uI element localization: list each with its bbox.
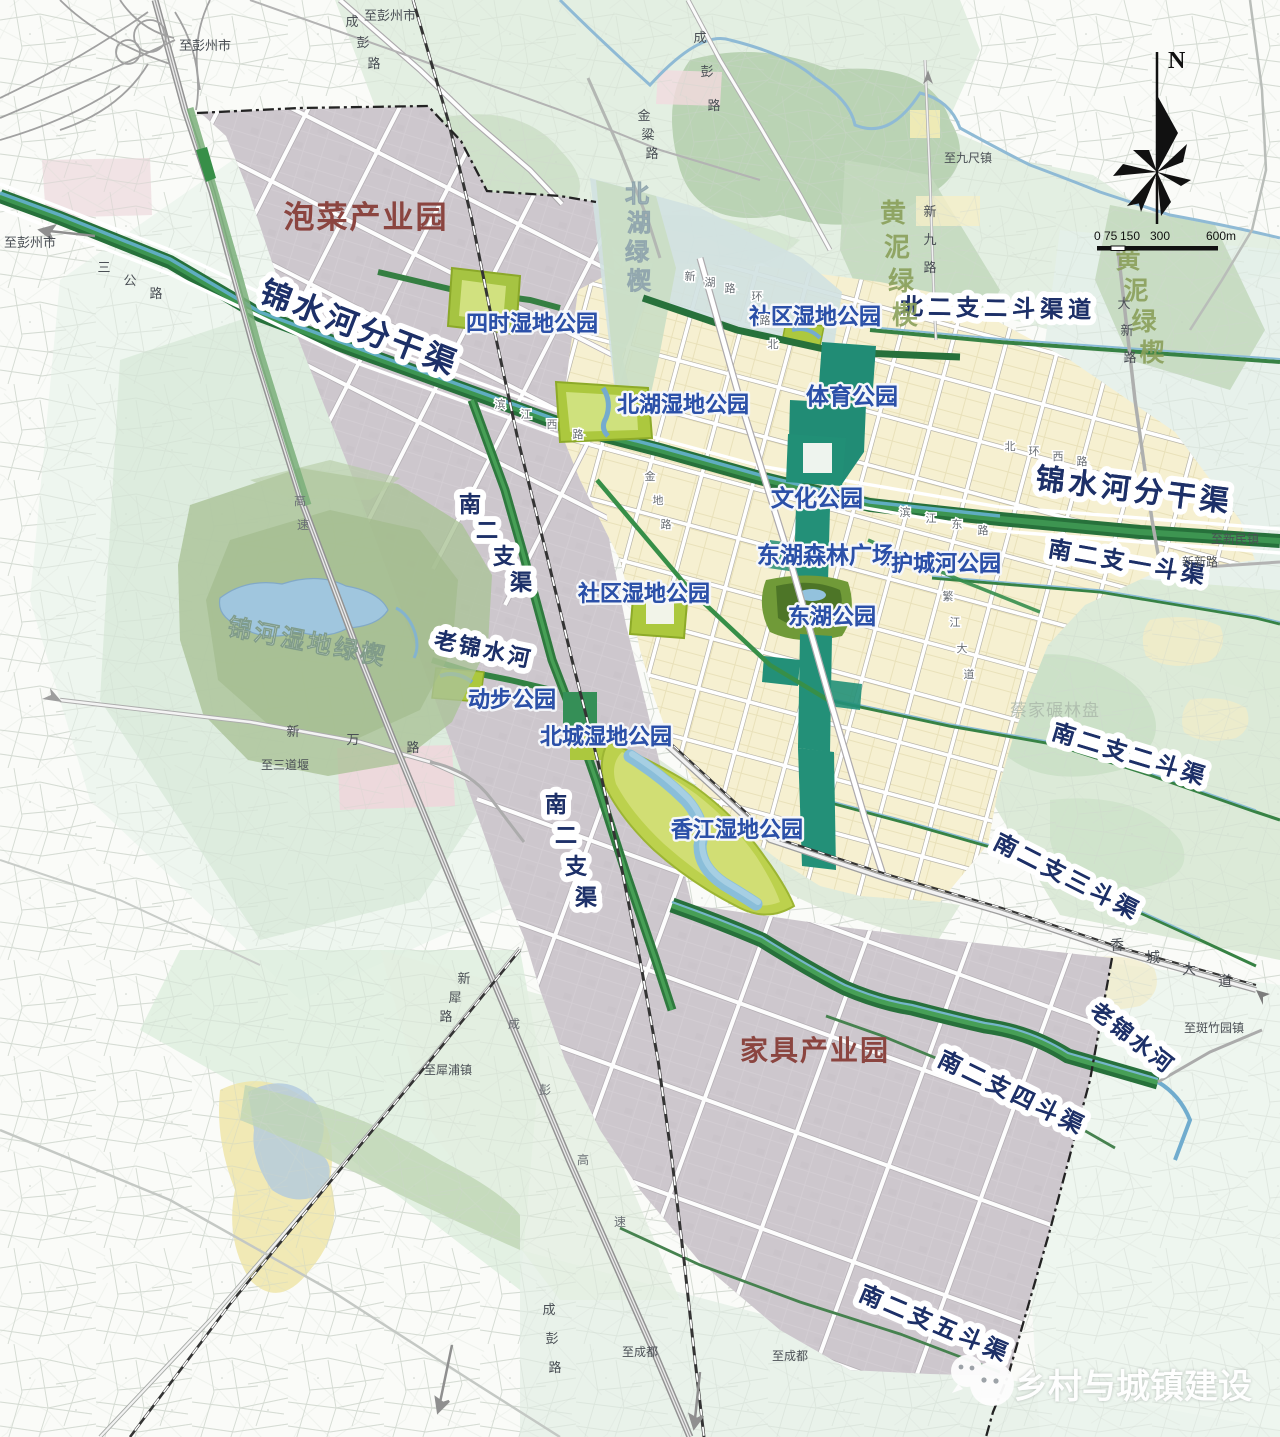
svg-text:东: 东 <box>952 518 963 531</box>
svg-text:150: 150 <box>1120 229 1140 243</box>
svg-text:楔: 楔 <box>1139 339 1164 367</box>
svg-text:北: 北 <box>1005 440 1016 453</box>
svg-text:路: 路 <box>1077 455 1088 468</box>
svg-text:路: 路 <box>367 56 380 71</box>
svg-text:新: 新 <box>923 204 936 219</box>
svg-text:北二支二斗渠道: 北二支二斗渠道 <box>900 293 1096 322</box>
svg-text:环: 环 <box>1029 446 1040 458</box>
svg-text:楔: 楔 <box>892 300 918 330</box>
svg-text:至彭州市: 至彭州市 <box>364 8 416 23</box>
svg-text:湖: 湖 <box>627 210 651 237</box>
svg-text:路: 路 <box>1123 350 1136 365</box>
svg-text:动步公园: 动步公园 <box>468 687 556 712</box>
svg-text:绿: 绿 <box>1131 307 1157 336</box>
svg-text:路: 路 <box>923 260 936 275</box>
svg-text:家具产业园: 家具产业园 <box>740 1034 890 1067</box>
svg-text:泥: 泥 <box>884 232 910 262</box>
svg-text:新新路: 新新路 <box>1182 554 1218 569</box>
svg-text:速: 速 <box>614 1215 626 1229</box>
svg-text:路: 路 <box>548 1360 561 1375</box>
svg-text:路: 路 <box>573 428 584 441</box>
svg-text:犀: 犀 <box>448 990 461 1005</box>
svg-text:新: 新 <box>286 724 299 739</box>
svg-text:路: 路 <box>645 146 658 161</box>
svg-text:彭: 彭 <box>356 35 369 50</box>
svg-text:社区湿地公园: 社区湿地公园 <box>578 581 710 606</box>
svg-text:大: 大 <box>1117 296 1130 311</box>
svg-text:香江湿地公园: 香江湿地公园 <box>671 817 803 842</box>
svg-text:公: 公 <box>123 273 136 288</box>
svg-text:江: 江 <box>950 616 961 629</box>
svg-text:地: 地 <box>653 494 664 507</box>
svg-text:至斑竹园镇: 至斑竹园镇 <box>1184 1021 1244 1035</box>
svg-text:至彭州市: 至彭州市 <box>179 38 231 53</box>
svg-text:城: 城 <box>1146 949 1160 965</box>
svg-text:路: 路 <box>978 524 989 537</box>
svg-text:至犀浦镇: 至犀浦镇 <box>424 1063 472 1077</box>
svg-text:楔: 楔 <box>627 268 651 295</box>
svg-text:路: 路 <box>149 286 162 301</box>
svg-text:新: 新 <box>1120 323 1133 338</box>
svg-text:西: 西 <box>547 419 558 431</box>
svg-text:万: 万 <box>346 732 359 747</box>
svg-text:体育公园: 体育公园 <box>806 383 898 409</box>
svg-text:粱: 粱 <box>641 127 654 142</box>
svg-text:支: 支 <box>493 544 516 569</box>
svg-text:九: 九 <box>923 232 936 247</box>
svg-text:江: 江 <box>521 408 532 421</box>
svg-text:渠: 渠 <box>575 885 597 910</box>
svg-text:新: 新 <box>685 269 696 283</box>
svg-text:彭: 彭 <box>539 1083 551 1097</box>
svg-text:泡菜产业园: 泡菜产业园 <box>284 200 449 235</box>
svg-text:乡村与城镇建设: 乡村与城镇建设 <box>1014 1368 1252 1406</box>
svg-text:成: 成 <box>542 1302 555 1317</box>
svg-text:至成都: 至成都 <box>772 1349 808 1363</box>
svg-text:至三道堰: 至三道堰 <box>261 758 309 772</box>
svg-text:成: 成 <box>693 30 706 45</box>
svg-text:绿: 绿 <box>625 238 650 266</box>
svg-text:道: 道 <box>964 667 975 681</box>
svg-text:彭: 彭 <box>545 1331 558 1346</box>
svg-text:北: 北 <box>768 338 779 351</box>
svg-text:至彭州市: 至彭州市 <box>4 235 56 250</box>
svg-text:南: 南 <box>545 792 567 817</box>
svg-text:环: 环 <box>752 291 763 303</box>
svg-text:高: 高 <box>577 1152 589 1167</box>
svg-text:湖: 湖 <box>705 276 716 289</box>
svg-text:成: 成 <box>345 14 358 29</box>
svg-text:路: 路 <box>707 98 720 113</box>
svg-text:路: 路 <box>661 518 672 531</box>
svg-text:南: 南 <box>459 492 481 517</box>
svg-text:路: 路 <box>725 282 736 295</box>
svg-text:路: 路 <box>439 1009 452 1024</box>
svg-text:繁: 繁 <box>943 589 954 603</box>
svg-text:滨: 滨 <box>495 397 506 411</box>
svg-text:大: 大 <box>957 641 968 655</box>
svg-text:高: 高 <box>294 493 306 508</box>
svg-text:滨: 滨 <box>900 505 911 519</box>
svg-text:彭: 彭 <box>700 64 713 79</box>
svg-text:北湖湿地公园: 北湖湿地公园 <box>617 392 749 417</box>
svg-text:成: 成 <box>508 1017 520 1031</box>
svg-text:道: 道 <box>1218 973 1232 989</box>
svg-text:黄: 黄 <box>880 198 906 228</box>
svg-text:北: 北 <box>625 181 649 208</box>
svg-text:至新民镇: 至新民镇 <box>1211 531 1259 546</box>
svg-text:75: 75 <box>1104 229 1118 243</box>
svg-text:文化公园: 文化公园 <box>771 485 863 511</box>
svg-text:四时湿地公园: 四时湿地公园 <box>466 311 598 336</box>
svg-text:蔡家碾林盘: 蔡家碾林盘 <box>1010 701 1100 720</box>
svg-text:至成都: 至成都 <box>622 1345 658 1359</box>
svg-text:速: 速 <box>297 518 309 532</box>
svg-text:江: 江 <box>926 512 937 525</box>
svg-text:路: 路 <box>760 314 771 327</box>
svg-text:绿: 绿 <box>888 266 915 296</box>
svg-text:西: 西 <box>1053 451 1064 463</box>
svg-text:东湖公园: 东湖公园 <box>788 604 876 629</box>
svg-text:支: 支 <box>565 854 588 879</box>
svg-text:金: 金 <box>637 108 650 123</box>
svg-text:300: 300 <box>1150 229 1170 243</box>
svg-text:路: 路 <box>406 740 419 755</box>
svg-text:大: 大 <box>1182 961 1196 977</box>
svg-text:600m: 600m <box>1206 229 1236 243</box>
svg-text:东湖森林广场: 东湖森林广场 <box>757 542 895 568</box>
svg-text:北城湿地公园: 北城湿地公园 <box>540 724 672 749</box>
svg-text:0: 0 <box>1094 229 1101 243</box>
svg-text:香: 香 <box>1110 937 1124 953</box>
svg-text:至九尺镇: 至九尺镇 <box>944 151 992 165</box>
svg-text:二: 二 <box>476 518 498 543</box>
svg-text:N: N <box>1168 48 1186 74</box>
svg-text:新: 新 <box>457 971 470 986</box>
svg-text:渠: 渠 <box>510 570 532 595</box>
svg-text:金: 金 <box>645 469 656 483</box>
svg-text:护城河公园: 护城河公园 <box>891 551 1001 576</box>
svg-text:三: 三 <box>97 260 110 275</box>
svg-text:二: 二 <box>555 823 577 848</box>
